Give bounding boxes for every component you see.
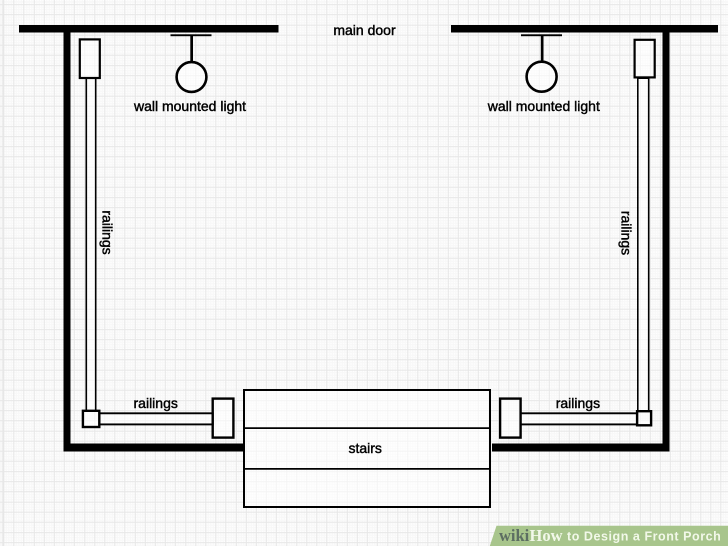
svg-text:wall mounted light: wall mounted light	[133, 98, 246, 114]
svg-text:railings: railings	[134, 395, 178, 411]
svg-text:stairs: stairs	[348, 440, 381, 456]
svg-text:main door: main door	[333, 22, 396, 38]
svg-text:to Design a Front Porch: to Design a Front Porch	[567, 530, 721, 544]
svg-text:railings: railings	[100, 210, 116, 254]
svg-text:wiki: wiki	[499, 526, 530, 545]
svg-text:railings: railings	[556, 395, 600, 411]
svg-text:How: How	[530, 526, 563, 545]
svg-text:railings: railings	[619, 211, 635, 255]
svg-text:wall mounted light: wall mounted light	[487, 98, 600, 114]
